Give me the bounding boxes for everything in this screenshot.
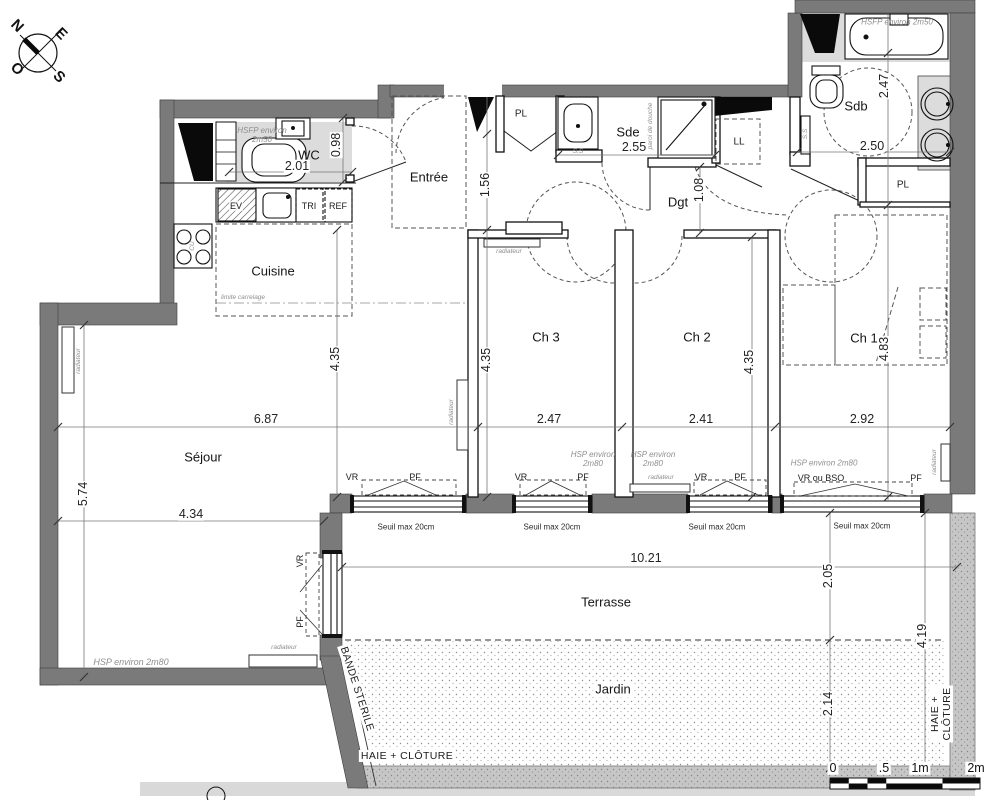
note-hsfp-wc: HSFP environ 2m50 bbox=[237, 126, 287, 144]
dim-terrasse-depth: 2.05 bbox=[822, 563, 835, 589]
window-label-vrbso-4: VR ou BSO bbox=[798, 473, 845, 483]
seuil-label-2: Seuil max 20cm bbox=[524, 522, 581, 531]
note-radiateur-ch1: radiateur bbox=[932, 449, 939, 475]
plan-labels: NESOEntréeWCCuisineSéjourCh 3Ch 2Ch 1Sde… bbox=[0, 0, 992, 800]
room-label-ch2: Ch 2 bbox=[683, 331, 710, 346]
window-label-pf-4: PF bbox=[910, 473, 922, 483]
room-label-entree: Entrée bbox=[410, 171, 448, 186]
scale-tick-05: .5 bbox=[877, 762, 891, 775]
dim-cuisine-depth: 4.35 bbox=[329, 346, 342, 372]
window-label-pf-1: PF bbox=[409, 472, 421, 482]
label-haie-cloture-right: HAIE + CLÔTURE bbox=[929, 686, 953, 743]
dim-ch3-width: 2.47 bbox=[536, 413, 562, 426]
room-label-ch1: Ch 1 bbox=[850, 332, 877, 347]
compass-e: E bbox=[51, 24, 70, 43]
dim-sejour-width2: 4.34 bbox=[178, 508, 204, 521]
dim-wc-depth: 0.98 bbox=[330, 132, 343, 158]
note-radiateur-corridor: radiateur bbox=[496, 249, 522, 256]
seuil-label-1: Seuil max 20cm bbox=[378, 522, 435, 531]
room-label-cuisine: Cuisine bbox=[251, 265, 294, 280]
note-hsp-ch1: HSP environ 2m80 bbox=[791, 458, 858, 467]
note-hsfp-bath: HSFP environ 2m50 bbox=[861, 17, 933, 26]
note-ss-sdb: S.S bbox=[803, 129, 810, 139]
dim-sejour-width: 6.87 bbox=[253, 413, 279, 426]
window-label-pf-3: PF bbox=[734, 472, 746, 482]
room-label-pl-ch1: PL bbox=[897, 179, 909, 191]
window-label-vr-1: VR bbox=[346, 472, 359, 482]
room-label-pl-entree: PL bbox=[515, 108, 527, 120]
note-cu-hob: CU bbox=[190, 241, 197, 250]
label-ref: REF bbox=[328, 201, 348, 211]
label-tri: TRI bbox=[301, 201, 318, 211]
dim-ch2-width: 2.41 bbox=[688, 413, 714, 426]
dim-ch2-depth: 4.35 bbox=[743, 349, 756, 375]
note-ss-sde: S.S bbox=[573, 149, 583, 156]
label-bande-sterile: BANDE STERILE bbox=[337, 643, 377, 734]
note-radiateur-ch2: radiateur bbox=[648, 475, 674, 482]
window-label-pf-2: PF bbox=[577, 472, 589, 482]
room-label-ch3: Ch 3 bbox=[532, 331, 559, 346]
note-hsp-ch3: HSP environ 2m80 bbox=[571, 450, 616, 468]
dim-sejour-depth: 5.74 bbox=[77, 481, 90, 507]
dim-dgt-width: 1.08 bbox=[693, 177, 706, 203]
room-label-terrasse: Terrasse bbox=[581, 596, 631, 611]
room-label-sdb: Sdb bbox=[844, 100, 867, 115]
window-label-vr-west: VR bbox=[295, 555, 305, 568]
dim-wc-width: 2.01 bbox=[284, 160, 310, 173]
dim-sdb-width: 2.50 bbox=[859, 140, 885, 153]
note-radiateur-sejour-bottom: radiateur bbox=[271, 645, 297, 652]
note-radiateur-sejour-left: radiateur bbox=[76, 348, 83, 374]
dim-terrasse-width: 10.21 bbox=[629, 552, 662, 565]
compass-s: S bbox=[49, 67, 68, 86]
window-label-vr-3: VR bbox=[695, 472, 708, 482]
compass-o: O bbox=[7, 59, 27, 79]
seuil-label-4: Seuil max 20cm bbox=[834, 521, 891, 530]
dim-sdb-depth: 2.47 bbox=[878, 73, 891, 99]
room-label-sde: Sde bbox=[616, 126, 639, 141]
room-label-dgt: Dgt bbox=[668, 196, 688, 211]
note-radiateur-ch3-left: radiateur bbox=[449, 399, 456, 425]
scale-tick-1m: 1m bbox=[909, 762, 930, 775]
window-label-pf-west: PF bbox=[295, 616, 305, 628]
note-hsp-sejour: HSP environ 2m80 bbox=[93, 657, 168, 667]
floor-plan: NESOEntréeWCCuisineSéjourCh 3Ch 2Ch 1Sde… bbox=[0, 0, 992, 800]
dim-ch3-depth: 4.35 bbox=[480, 347, 493, 373]
room-label-jardin: Jardin bbox=[593, 683, 632, 698]
dim-jardin-depth: 2.14 bbox=[822, 691, 835, 717]
scale-tick-0: 0 bbox=[828, 762, 839, 775]
label-ev: EV bbox=[229, 201, 243, 211]
note-hsp-ch2: HSP environ 2m80 bbox=[631, 450, 676, 468]
dim-sde-width: 2.55 bbox=[621, 141, 647, 154]
dim-ch1-width: 2.92 bbox=[849, 413, 875, 426]
scale-tick-2m: 2m bbox=[965, 762, 986, 775]
note-limite-carrelage: limite carrelage bbox=[221, 295, 265, 302]
room-label-sejour: Séjour bbox=[184, 451, 222, 466]
dim-entree-width: 1.56 bbox=[479, 172, 492, 198]
seuil-label-3: Seuil max 20cm bbox=[689, 522, 746, 531]
note-paroi-douche: paroi de douche bbox=[648, 103, 655, 150]
label-haie-cloture-bottom: HAIE + CLÔTURE bbox=[359, 750, 455, 762]
dim-garden-total: 4.19 bbox=[916, 623, 929, 649]
room-label-ll: LL bbox=[733, 136, 744, 148]
dim-ch1-depth: 4.83 bbox=[878, 336, 891, 362]
window-label-vr-2: VR bbox=[515, 472, 528, 482]
compass-n: N bbox=[7, 16, 27, 36]
